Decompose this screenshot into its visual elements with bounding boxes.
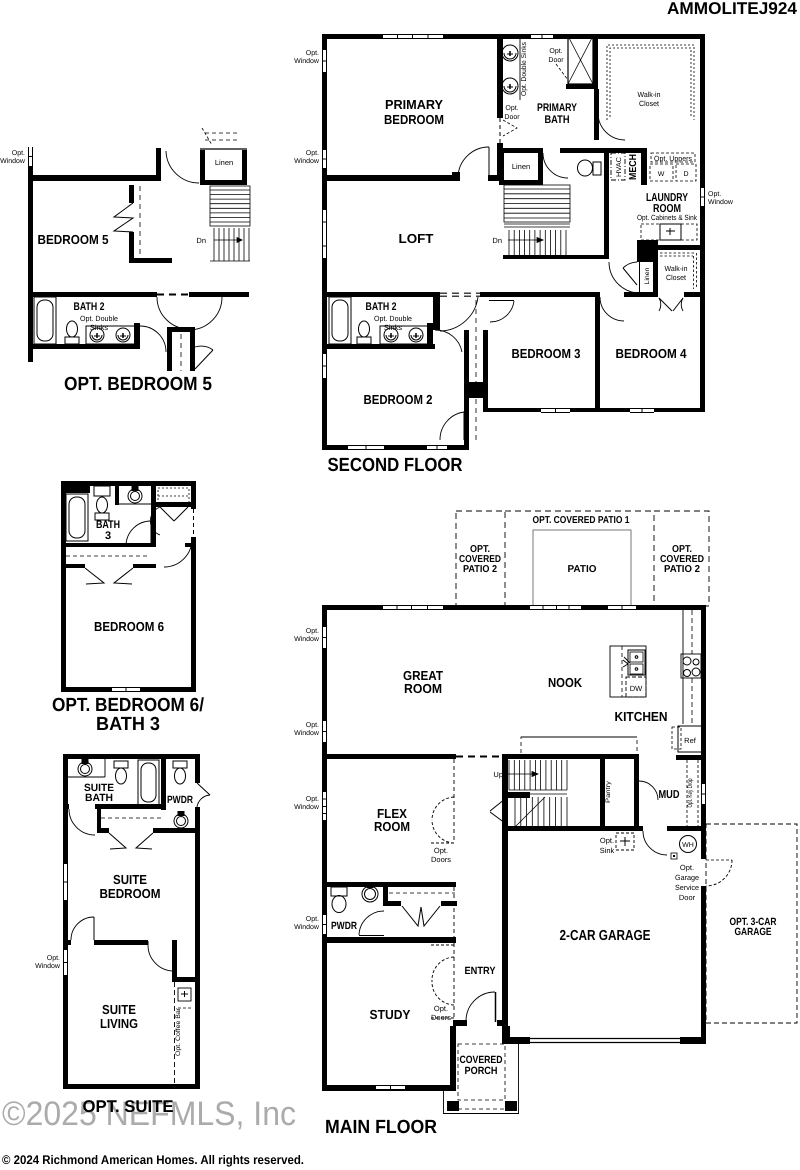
svg-text:BEDROOM: BEDROOM (384, 112, 444, 127)
svg-text:Opt.: Opt. (434, 1004, 448, 1013)
svg-text:Sinks: Sinks (384, 323, 403, 332)
svg-text:Garage: Garage (675, 873, 699, 882)
svg-text:GARAGE: GARAGE (735, 926, 772, 938)
svg-text:Window: Window (294, 729, 320, 737)
svg-text:HVAC: HVAC (616, 157, 623, 177)
svg-text:OPT. COVERED PATIO 1: OPT. COVERED PATIO 1 (533, 515, 630, 526)
svg-text:Opt.: Opt. (505, 105, 518, 112)
svg-text:Opt.: Opt. (306, 722, 319, 729)
svg-text:PATIO: PATIO (568, 564, 597, 575)
svg-text:Walk-in: Walk-in (665, 264, 688, 273)
svg-text:Window: Window (294, 803, 320, 811)
svg-text:WH: WH (682, 842, 694, 849)
svg-text:Opt. Uppers: Opt. Uppers (654, 154, 692, 163)
svg-text:Opt.: Opt. (47, 955, 60, 962)
svg-text:PWDR: PWDR (331, 920, 357, 932)
svg-text:Walk-in: Walk-in (638, 90, 661, 99)
svg-text:BEDROOM 5: BEDROOM 5 (38, 232, 109, 247)
svg-text:W: W (658, 171, 665, 178)
svg-text:Door: Door (548, 57, 564, 64)
svg-text:BATH 2: BATH 2 (74, 301, 105, 313)
svg-text:D: D (683, 171, 688, 178)
svg-text:MAIN FLOOR: MAIN FLOOR (325, 1117, 437, 1138)
svg-text:BEDROOM 2: BEDROOM 2 (364, 392, 433, 407)
svg-text:3: 3 (105, 530, 111, 542)
svg-text:Dn: Dn (492, 236, 502, 245)
svg-text:BATH 3: BATH 3 (96, 714, 160, 735)
svg-text:OPT. BEDROOM 6/: OPT. BEDROOM 6/ (52, 695, 205, 716)
svg-text:BATH: BATH (85, 792, 113, 804)
svg-text:Window: Window (294, 57, 320, 65)
svg-text:Doors: Doors (431, 1013, 451, 1022)
svg-text:Opt.: Opt. (434, 846, 448, 855)
svg-text:ROOM: ROOM (374, 819, 410, 834)
svg-text:SUITE: SUITE (113, 872, 147, 887)
svg-text:Opt.: Opt. (12, 150, 25, 157)
svg-text:BEDROOM 4: BEDROOM 4 (616, 346, 688, 361)
svg-text:Opt. Double Sinks: Opt. Double Sinks (520, 42, 528, 96)
svg-text:Window: Window (294, 923, 320, 931)
svg-text:PORCH: PORCH (465, 1065, 498, 1077)
svg-text:PRIMARY: PRIMARY (537, 102, 578, 114)
svg-text:BEDROOM 6: BEDROOM 6 (94, 619, 164, 634)
svg-text:KITCHEN: KITCHEN (615, 709, 668, 724)
svg-text:Opt. Cabinets & Sink: Opt. Cabinets & Sink (637, 213, 697, 222)
svg-text:PWDR: PWDR (167, 794, 193, 806)
svg-text:Linen: Linen (644, 267, 651, 284)
svg-text:Window: Window (708, 198, 734, 206)
svg-text:MECH: MECH (628, 154, 639, 180)
svg-text:NOOK: NOOK (548, 675, 583, 690)
svg-text:Opt.: Opt. (708, 191, 721, 198)
svg-text:BATH 2: BATH 2 (366, 301, 397, 313)
svg-text:Opt. Double: Opt. Double (80, 314, 118, 323)
svg-text:Doors: Doors (431, 855, 451, 864)
svg-text:Up: Up (493, 770, 503, 779)
svg-text:Pantry: Pantry (605, 780, 612, 803)
svg-text:OPT. BEDROOM 5: OPT. BEDROOM 5 (64, 374, 212, 395)
svg-text:BATH: BATH (545, 114, 570, 126)
svg-text:PRIMARY: PRIMARY (385, 97, 443, 112)
svg-text:ENTRY: ENTRY (465, 965, 496, 977)
svg-text:SECOND FLOOR: SECOND FLOOR (328, 455, 463, 476)
svg-text:Service: Service (675, 883, 699, 892)
svg-text:Opt.: Opt. (306, 50, 319, 57)
svg-text:Window: Window (294, 635, 320, 643)
svg-text:BEDROOM: BEDROOM (100, 886, 161, 901)
svg-text:Opt.: Opt. (306, 916, 319, 923)
svg-text:MUD: MUD (659, 789, 680, 801)
svg-text:DW: DW (630, 684, 643, 693)
svg-text:STUDY: STUDY (370, 1007, 411, 1022)
svg-text:Opt.: Opt. (306, 796, 319, 803)
svg-text:Opt.: Opt. (680, 863, 694, 872)
svg-text:Window: Window (35, 962, 61, 970)
svg-text:Sinks: Sinks (90, 323, 109, 332)
svg-text:Closet: Closet (666, 273, 687, 282)
svg-text:Ref: Ref (684, 736, 697, 745)
svg-text:BEDROOM 3: BEDROOM 3 (512, 346, 581, 361)
svg-text:ROOM: ROOM (404, 681, 442, 696)
svg-text:AMMOLITEJ924: AMMOLITEJ924 (667, 0, 798, 18)
svg-text:Opt. Key Drop: Opt. Key Drop (687, 778, 694, 807)
svg-text:SUITE: SUITE (102, 1002, 136, 1017)
svg-text:Closet: Closet (639, 99, 660, 108)
svg-text:© 2024 Richmond American Homes: © 2024 Richmond American Homes. All righ… (2, 1153, 304, 1167)
svg-text:LIVING: LIVING (100, 1016, 138, 1031)
svg-text:Window: Window (294, 157, 320, 165)
svg-text:Door: Door (679, 893, 696, 902)
svg-text:LOFT: LOFT (399, 231, 434, 246)
svg-text:Dn: Dn (196, 236, 206, 245)
svg-text:Opt. Coffee Bar: Opt. Coffee Bar (175, 1007, 182, 1056)
svg-text:PATIO 2: PATIO 2 (664, 564, 700, 575)
svg-text:OPT. SUITE: OPT. SUITE (83, 1097, 174, 1116)
svg-text:Door: Door (504, 114, 520, 121)
svg-text:Linen: Linen (512, 162, 530, 171)
svg-text:PATIO 2: PATIO 2 (463, 564, 497, 575)
svg-text:Opt.: Opt. (600, 836, 614, 845)
svg-text:Sink: Sink (600, 846, 615, 855)
svg-text:Opt.: Opt. (549, 48, 562, 55)
svg-text:Window: Window (0, 157, 26, 165)
svg-text:Opt. Double: Opt. Double (374, 314, 412, 323)
svg-text:Linen: Linen (215, 158, 233, 167)
svg-text:Opt.: Opt. (306, 150, 319, 157)
svg-text:Opt.: Opt. (306, 628, 319, 635)
svg-text:2-CAR GARAGE: 2-CAR GARAGE (560, 928, 651, 944)
